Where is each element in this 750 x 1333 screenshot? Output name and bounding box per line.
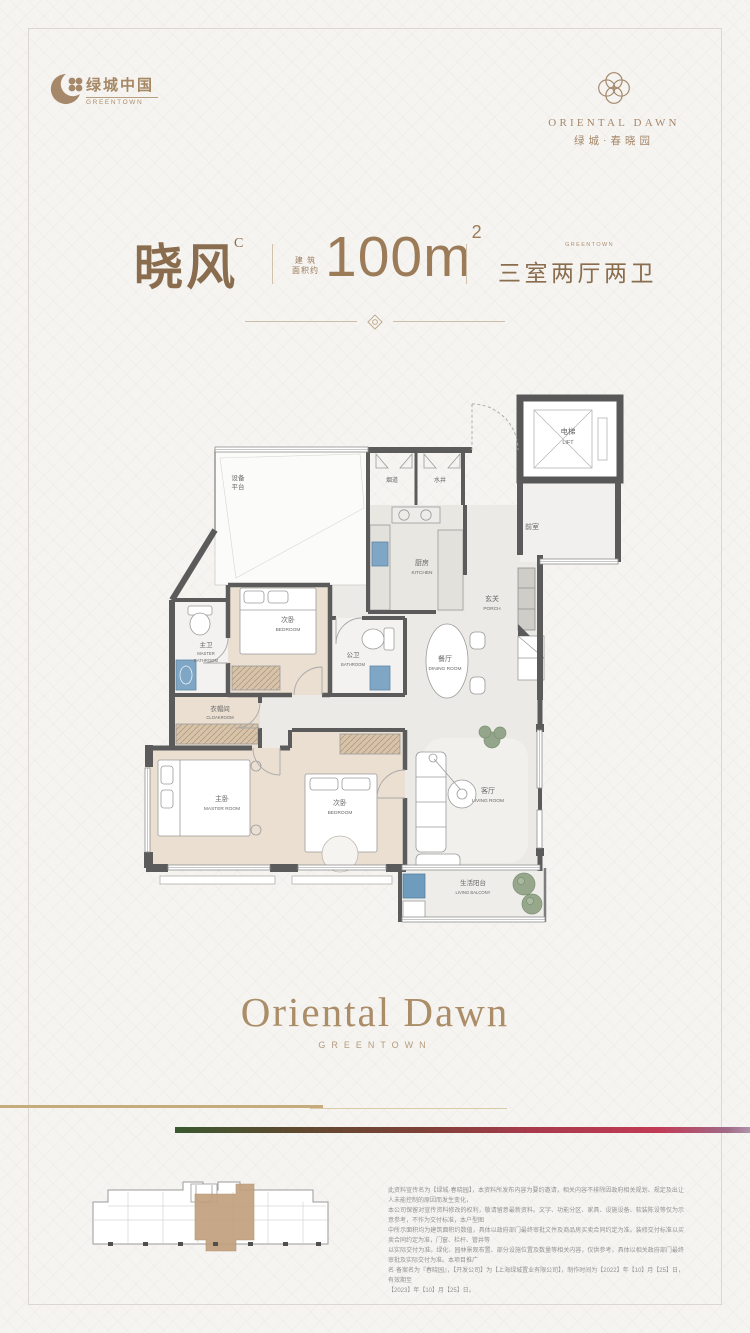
master-bath-label: 主卫 <box>200 640 214 649</box>
greentown-logo: 绿城中国 GREENTOWN <box>50 72 240 114</box>
svg-text:MASTER: MASTER <box>197 651 214 656</box>
balcony-label: 生活阳台 <box>460 878 486 887</box>
greentown-en-label: GREENTOWN <box>86 99 158 106</box>
bedroom3-label: 次卧 <box>333 798 347 807</box>
svg-text:MASTER ROOM: MASTER ROOM <box>204 806 240 812</box>
living-label: 客厅 <box>481 786 495 795</box>
footer-wordmark: Oriental Dawn <box>0 988 750 1036</box>
bath-label: 公卫 <box>347 651 361 659</box>
greentown-crescent-clover-icon <box>50 72 84 112</box>
svg-text:BATHROOM: BATHROOM <box>341 662 365 667</box>
svg-text:LIVING BALCONY: LIVING BALCONY <box>456 890 491 895</box>
svg-text:BEDROOM: BEDROOM <box>328 810 353 816</box>
project-cn-label: 绿城·春晓园 <box>524 133 704 148</box>
lift-shaft <box>520 398 620 480</box>
bedroom2-label: 次卧 <box>281 615 295 624</box>
svg-text:平台: 平台 <box>232 482 245 491</box>
master-room-label: 主卧 <box>215 794 229 803</box>
svg-text:BEDROOM: BEDROOM <box>276 627 301 633</box>
greentown-underline <box>86 97 158 98</box>
gradient-bar <box>175 1127 750 1133</box>
oriental-dawn-logo: ORIENTAL DAWN 绿城·春晓园 <box>524 70 704 148</box>
unit-name: 晓风 <box>134 228 238 299</box>
project-en-label: ORIENTAL DAWN <box>524 117 704 129</box>
kitchen-label: 厨房 <box>415 558 429 567</box>
poster-page: 绿城中国 GREENTOWN ORIENTAL DAWN 绿城·春晓园 晓风 C… <box>0 0 750 1333</box>
ornament-divider <box>0 310 750 334</box>
svg-text:BATHROOM: BATHROOM <box>194 658 218 663</box>
gold-line-thick <box>0 1105 323 1108</box>
layout-label: 三室两厅两卫 <box>498 261 657 286</box>
area-prefix: 建 筑 面积约 <box>292 256 319 276</box>
title-brand-small: GREENTOWN <box>498 242 616 248</box>
four-petal-clover-icon <box>596 70 632 106</box>
lift-label: 电梯 <box>561 426 576 436</box>
title-divider-1 <box>272 244 273 284</box>
title-row: 晓风 C 建 筑 面积约 100m2 GREENTOWN 三室两厅两卫 <box>0 226 750 296</box>
lobby-label: 前室 <box>525 522 539 531</box>
equipment-platform-label: 设备 <box>232 473 246 482</box>
svg-text:CLOAKROOM: CLOAKROOM <box>206 715 234 720</box>
greentown-cn-label: 绿城中国 <box>86 74 158 95</box>
title-divider-2 <box>466 244 467 284</box>
unit-code: C <box>234 236 243 252</box>
svg-text:PORCH: PORCH <box>483 606 501 612</box>
gold-line-thin <box>310 1108 507 1109</box>
dining-label: 餐厅 <box>438 654 452 663</box>
floor-plan: 设备 平台 烟道 水井 电梯 LIFT 前室 厨房 KITCHEN 玄关 POR… <box>140 388 640 928</box>
footer-wordmark-sub: GREENTOWN <box>0 1040 750 1050</box>
svg-text:LIFT: LIFT <box>562 440 574 446</box>
area-value: 100m2 <box>325 222 482 290</box>
svg-text:LIVING ROOM: LIVING ROOM <box>472 798 504 804</box>
porch-label: 玄关 <box>485 594 499 603</box>
svg-text:KITCHEN: KITCHEN <box>411 570 433 576</box>
water-shaft-label: 水井 <box>434 476 446 484</box>
flower-ornament-icon <box>366 313 384 331</box>
svg-text:DINING ROOM: DINING ROOM <box>428 666 461 672</box>
building-key-plan <box>88 1172 333 1264</box>
cloakroom-label: 衣帽间 <box>210 704 230 713</box>
disclaimer-text: 此资料宣传名为【绿城·春晓园】，本资料所发布内容为要约邀请，相关内容不排除因政府… <box>388 1186 684 1296</box>
flue-label: 烟道 <box>386 476 398 484</box>
